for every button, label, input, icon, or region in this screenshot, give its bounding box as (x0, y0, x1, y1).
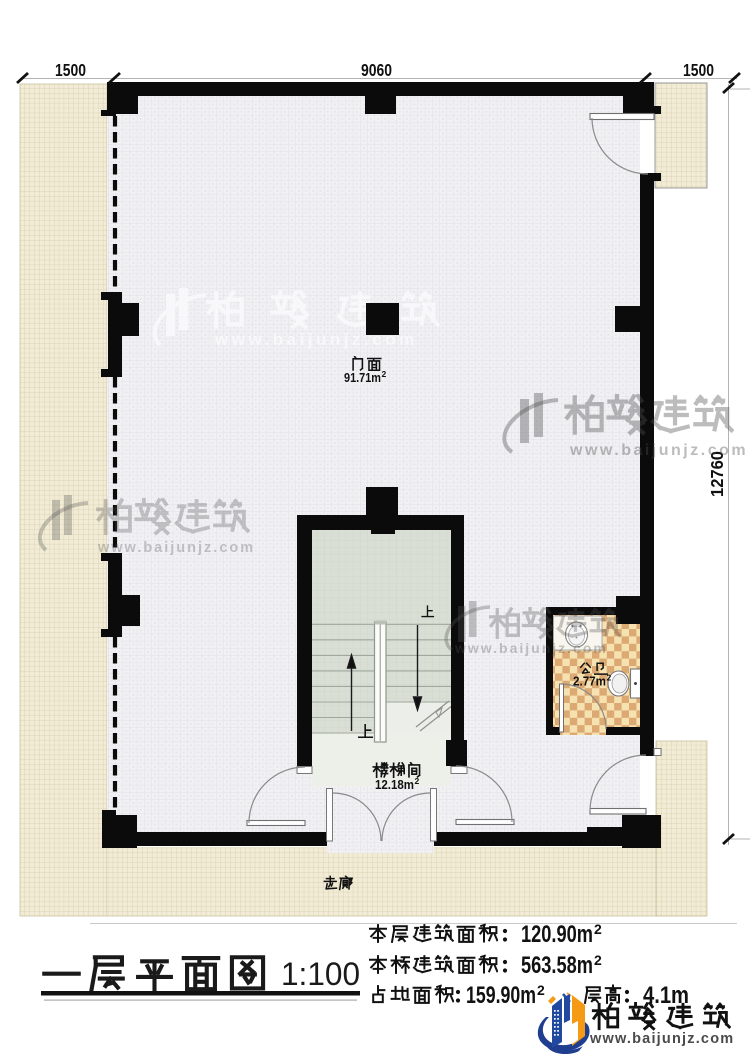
svg-text:www.baijunjz.com: www.baijunjz.com (589, 1031, 734, 1047)
svg-text:120.90m: 120.90m (521, 921, 593, 948)
svg-text:91.71m: 91.71m (344, 371, 381, 385)
svg-text:9060: 9060 (361, 60, 392, 80)
svg-text:2.77m: 2.77m (573, 675, 606, 689)
svg-text:2: 2 (382, 369, 387, 379)
svg-text:563.58m: 563.58m (521, 952, 593, 979)
svg-text:2: 2 (415, 776, 420, 786)
svg-text:www.baijunjz.com: www.baijunjz.com (569, 442, 748, 459)
svg-text:2: 2 (537, 982, 545, 998)
svg-text:2: 2 (594, 921, 602, 937)
svg-text:1:100: 1:100 (281, 956, 360, 992)
svg-text:12.18m: 12.18m (375, 778, 414, 792)
svg-text:1500: 1500 (683, 60, 714, 80)
svg-text:2: 2 (594, 952, 602, 968)
svg-text:www.baijunjz.com: www.baijunjz.com (97, 540, 255, 556)
svg-text:1500: 1500 (55, 60, 86, 80)
svg-text:159.90m: 159.90m (466, 982, 536, 1009)
svg-text:www.baijunjz.com: www.baijunjz.com (454, 640, 608, 656)
